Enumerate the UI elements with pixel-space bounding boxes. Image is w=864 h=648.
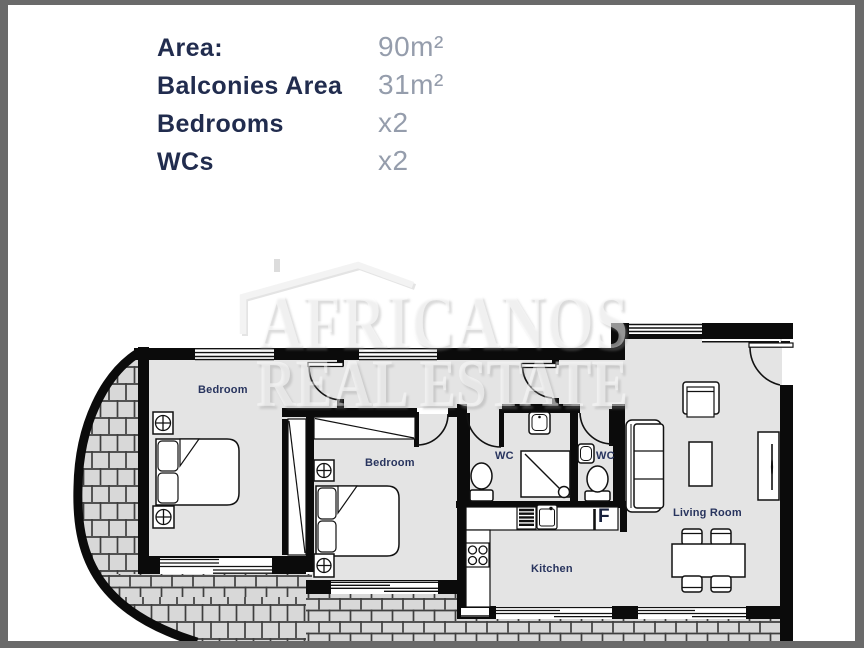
- svg-text:WC: WC: [596, 450, 615, 462]
- svg-text:90m²: 90m²: [378, 31, 444, 62]
- svg-text:F: F: [598, 506, 610, 527]
- svg-text:Balconies Area: Balconies Area: [157, 72, 343, 100]
- svg-text:Area:: Area:: [157, 34, 223, 62]
- svg-text:31m²: 31m²: [378, 69, 444, 100]
- svg-text:Living Room: Living Room: [673, 507, 742, 519]
- svg-text:Bedrooms: Bedrooms: [157, 110, 284, 138]
- svg-text:REAL ESTATE: REAL ESTATE: [256, 345, 628, 421]
- svg-text:WCs: WCs: [157, 148, 214, 176]
- svg-text:x2: x2: [378, 107, 409, 138]
- svg-text:WC: WC: [495, 450, 514, 462]
- svg-text:Bedroom: Bedroom: [365, 457, 415, 469]
- svg-text:Kitchen: Kitchen: [531, 563, 573, 575]
- svg-text:Bedroom: Bedroom: [198, 384, 248, 396]
- svg-text:x2: x2: [378, 145, 409, 176]
